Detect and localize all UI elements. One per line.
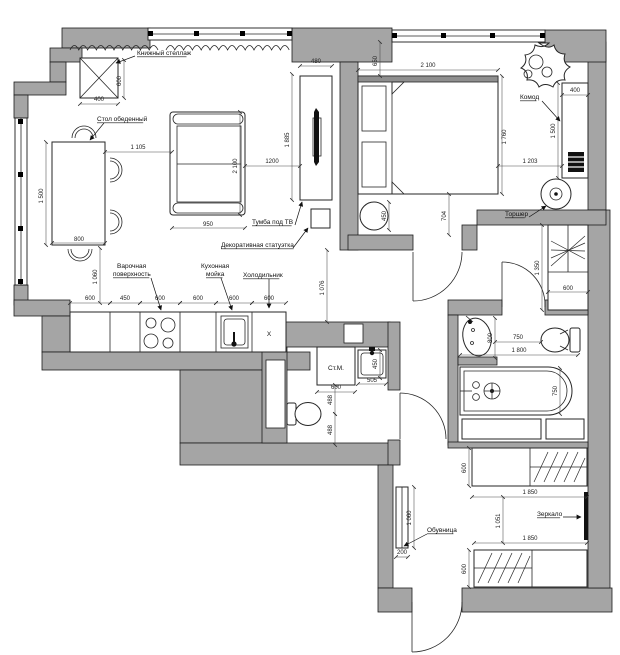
- floor-plan-drawing: 4006001 5008001 1052 10095012001 8854801…: [0, 0, 620, 655]
- furniture-label: Тумба под ТВ: [252, 218, 293, 226]
- dimension-text: 600: [117, 75, 123, 86]
- furniture-label: Обувница: [427, 526, 457, 534]
- dimension-text: 1 850: [522, 536, 538, 542]
- furniture-label: мойка: [206, 270, 225, 278]
- chair: [110, 210, 122, 234]
- dimension-text: 480: [311, 59, 322, 65]
- vent-duct: [344, 324, 363, 343]
- dimension-text: 400: [570, 88, 581, 94]
- dimension-text: 450: [373, 358, 379, 369]
- dimension-text: 950: [203, 222, 214, 228]
- furniture-label: поверхность: [113, 271, 151, 278]
- furniture-label: X: [267, 331, 272, 338]
- entry-wardrobe-top: [472, 448, 587, 486]
- dimension-text: 800: [74, 237, 85, 243]
- dresser: [562, 83, 588, 178]
- dimension-text: 1 060: [93, 269, 99, 285]
- vent-duct: [266, 360, 285, 428]
- dimension-text: 600: [193, 296, 204, 302]
- entry-wardrobe-bottom: [474, 550, 587, 587]
- label-leader: [221, 278, 232, 310]
- bed: [358, 76, 498, 194]
- chair: [68, 249, 92, 261]
- dimension-text: 800: [488, 332, 494, 343]
- furniture-label: Стол обеденный: [97, 115, 148, 123]
- furniture-label: Декоративная статуэтка: [221, 242, 294, 249]
- furniture-label: Варочная: [117, 263, 147, 270]
- statuette: [311, 209, 330, 228]
- mirror: [584, 492, 588, 540]
- furniture-label: Книжный стеллаж: [137, 49, 192, 57]
- furniture-label: Торшер: [505, 211, 529, 218]
- furniture-label: Кухонная: [201, 263, 230, 270]
- dimension-text: 750: [513, 335, 524, 341]
- window-bedroom-top: [392, 30, 545, 42]
- dimension-text: 1 051: [496, 513, 502, 529]
- dining-table: [52, 126, 122, 261]
- bedroom-door: [413, 252, 462, 301]
- label-leader: [295, 202, 302, 225]
- dimension-text: 488: [328, 424, 334, 435]
- wc-toilet: [287, 403, 321, 426]
- furniture-label: Зеркало: [537, 511, 563, 518]
- dimension-text: 1 060: [407, 510, 413, 526]
- dimension-text: 400: [94, 97, 105, 103]
- dimension-text: 750: [553, 385, 559, 396]
- dimension-text: 600: [229, 296, 240, 302]
- tv-stand: [300, 76, 332, 200]
- dimension-text: 1200: [265, 159, 279, 165]
- bed-headrail: [358, 76, 498, 82]
- dimension-text: 650: [373, 55, 379, 66]
- dimension-text: 1 885: [285, 132, 291, 148]
- dimension-text: 1 500: [39, 188, 45, 204]
- dimension-text: 600: [462, 563, 468, 574]
- label-leader: [542, 101, 560, 121]
- dimension-text: 1 850: [522, 490, 538, 496]
- dimension-text: 1 350: [535, 260, 541, 276]
- dimension-text: 1 800: [511, 348, 527, 354]
- dimension-text: 2 100: [233, 158, 239, 174]
- dimension-text: 1 500: [551, 123, 557, 139]
- dimension-text: 450: [382, 210, 388, 221]
- bath-toilet: [541, 328, 580, 352]
- dimension-text: 450: [120, 296, 131, 302]
- entry-door: [412, 602, 462, 652]
- dimension-text: 600: [462, 462, 468, 473]
- furniture-label: Комод: [520, 94, 539, 101]
- window-living-top: [148, 28, 292, 40]
- dimension-text: 488: [328, 394, 334, 405]
- label-leader: [90, 123, 104, 140]
- dimension-text: 600: [331, 385, 342, 391]
- kitchen-counter: [70, 312, 286, 352]
- dimension-text: 1 105: [130, 145, 146, 151]
- hall-wardrobe: [548, 225, 588, 310]
- tv: [314, 108, 319, 166]
- dimension-text: 2 100: [420, 63, 436, 69]
- dimension-text: 1 076: [320, 280, 326, 296]
- bath-cabinet: [546, 419, 584, 439]
- dimension-text: 1 760: [502, 129, 508, 145]
- chair: [72, 126, 96, 138]
- floor-lamp: [541, 179, 571, 209]
- dimension-text: 704: [442, 210, 448, 221]
- label-leader: [151, 278, 161, 310]
- dimension-text: 505: [367, 378, 378, 384]
- wc-door: [400, 393, 446, 439]
- furniture-label: Холодильник: [243, 272, 283, 279]
- dimension-text: 600: [85, 296, 96, 302]
- floor-plan-canvas: 4006001 5008001 1052 10095012001 8854801…: [0, 0, 620, 655]
- furniture: [52, 43, 588, 587]
- furniture-label: Ст.М.: [328, 365, 344, 372]
- label-leader: [293, 228, 308, 248]
- bath-cabinet: [462, 419, 541, 439]
- bookshelf: [80, 58, 118, 98]
- chair: [110, 158, 122, 182]
- window-living-left: [15, 118, 27, 285]
- dimension-text: 600: [563, 286, 574, 292]
- dimension-text: 200: [397, 550, 408, 556]
- dimension-text: 1 203: [522, 159, 538, 165]
